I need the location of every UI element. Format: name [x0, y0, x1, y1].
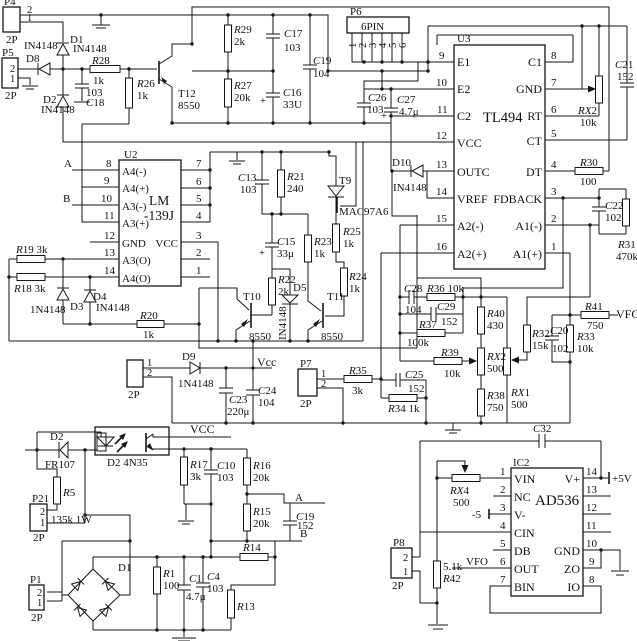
svg-text:10: 10	[436, 77, 448, 89]
svg-text:4: 4	[500, 520, 506, 532]
svg-text:10k: 10k	[580, 117, 597, 129]
svg-text:16: 16	[436, 241, 448, 253]
svg-text:R25: R25	[342, 226, 361, 238]
svg-text:DB: DB	[514, 544, 531, 558]
svg-text:14: 14	[104, 265, 116, 277]
svg-text:220μ: 220μ	[227, 406, 250, 418]
svg-text:8550: 8550	[178, 100, 201, 112]
svg-text:2: 2	[500, 484, 506, 496]
svg-text:R1: R1	[162, 568, 175, 580]
svg-text:500: 500	[487, 363, 504, 375]
svg-text:6: 6	[196, 176, 202, 188]
svg-text:V+: V+	[565, 472, 581, 486]
svg-text:3k: 3k	[190, 471, 202, 483]
svg-text:500: 500	[453, 497, 470, 509]
svg-text:+: +	[260, 96, 266, 107]
svg-text:1N4148: 1N4148	[30, 304, 66, 316]
svg-text:6: 6	[551, 104, 557, 116]
svg-text:E1: E1	[457, 55, 470, 69]
svg-text:10k: 10k	[577, 343, 594, 355]
svg-text:IN4148: IN4148	[73, 43, 107, 55]
svg-text:T11: T11	[327, 291, 344, 303]
svg-text:R26: R26	[136, 78, 155, 90]
svg-text:OUTC: OUTC	[457, 165, 490, 179]
svg-text:11: 11	[104, 210, 115, 222]
svg-text:P21: P21	[32, 493, 49, 505]
svg-text:VCC: VCC	[190, 422, 215, 436]
svg-text:12: 12	[436, 130, 447, 142]
svg-text:R13: R13	[236, 601, 255, 613]
svg-text:C19: C19	[313, 55, 332, 67]
svg-text:1: 1	[37, 598, 42, 609]
svg-text:2P: 2P	[5, 90, 17, 102]
svg-text:C17: C17	[284, 28, 303, 40]
svg-text:3: 3	[551, 186, 557, 198]
svg-text:11: 11	[586, 520, 597, 532]
svg-text:IN4148: IN4148	[96, 302, 130, 314]
svg-text:C24: C24	[258, 385, 277, 397]
svg-text:8: 8	[551, 50, 557, 62]
svg-text:2: 2	[196, 247, 202, 259]
svg-text:103: 103	[240, 184, 257, 196]
svg-text:C20: C20	[550, 325, 569, 337]
svg-text:GND: GND	[554, 544, 580, 558]
svg-text:T12: T12	[178, 88, 196, 100]
svg-text:A1(-): A1(-)	[515, 219, 542, 233]
svg-text:CIN: CIN	[514, 526, 535, 540]
svg-text:C29: C29	[437, 301, 456, 313]
svg-text:T10: T10	[243, 291, 261, 303]
svg-text:152: 152	[617, 71, 634, 83]
svg-text:9: 9	[439, 50, 445, 62]
svg-text:6PIN: 6PIN	[361, 21, 384, 33]
svg-text:12: 12	[104, 230, 115, 242]
svg-text:B: B	[63, 193, 70, 205]
svg-text:3: 3	[500, 502, 506, 514]
svg-text:C26: C26	[368, 92, 387, 104]
svg-text:430: 430	[487, 320, 504, 332]
svg-text:VFO: VFO	[616, 307, 637, 321]
svg-text:C23: C23	[229, 394, 248, 406]
svg-text:1: 1	[551, 241, 557, 253]
svg-text:A4(O): A4(O)	[122, 273, 151, 285]
svg-text:RX2: RX2	[577, 105, 597, 117]
svg-text:100k: 100k	[407, 337, 430, 349]
svg-text:2P: 2P	[31, 612, 43, 624]
svg-text:-5: -5	[472, 509, 482, 521]
svg-text:VCC: VCC	[457, 136, 482, 150]
svg-text:20k: 20k	[253, 472, 270, 484]
svg-text:MAC97A6: MAC97A6	[339, 206, 389, 218]
svg-text:C32: C32	[533, 423, 551, 435]
svg-text:103: 103	[284, 42, 301, 54]
svg-text:7: 7	[196, 158, 202, 170]
svg-text:IN4148: IN4148	[41, 104, 75, 116]
svg-text:D1: D1	[118, 562, 131, 574]
svg-text:R17: R17	[189, 459, 208, 471]
svg-text:152: 152	[441, 316, 458, 328]
svg-text:R23: R23	[313, 236, 332, 248]
svg-text:103: 103	[217, 472, 234, 484]
svg-text:1: 1	[40, 518, 45, 529]
svg-text:E2: E2	[457, 82, 470, 96]
svg-text:13: 13	[436, 159, 448, 171]
svg-text:11: 11	[437, 104, 448, 116]
svg-text:R31: R31	[617, 239, 636, 251]
svg-text:CT: CT	[527, 134, 543, 148]
svg-text:5.1k: 5.1k	[443, 561, 463, 573]
svg-text:5: 5	[196, 193, 202, 205]
svg-text:R35: R35	[348, 365, 367, 377]
svg-text:A4(-): A4(-)	[122, 166, 147, 178]
svg-text:R24: R24	[348, 271, 367, 283]
svg-text:P5: P5	[2, 47, 14, 59]
svg-text:750: 750	[587, 320, 604, 332]
svg-text:R36 10k: R36 10k	[426, 283, 464, 295]
svg-text:R27: R27	[233, 80, 252, 92]
svg-text:7: 7	[500, 574, 506, 586]
svg-text:DT: DT	[526, 165, 543, 179]
svg-text:14: 14	[586, 466, 598, 478]
svg-text:152: 152	[408, 383, 425, 395]
svg-text:A: A	[64, 158, 72, 170]
svg-text:1k: 1k	[349, 283, 361, 295]
svg-text:R33: R33	[576, 331, 595, 343]
svg-text:D5: D5	[293, 282, 307, 294]
svg-text:7: 7	[551, 77, 557, 89]
svg-text:R34 1k: R34 1k	[387, 403, 420, 415]
svg-text:1k: 1k	[314, 248, 326, 260]
svg-text:U2: U2	[124, 149, 137, 161]
svg-text:OUT: OUT	[514, 562, 539, 576]
svg-text:33U: 33U	[283, 99, 302, 111]
svg-text:NC: NC	[514, 490, 531, 504]
svg-text:AD536: AD536	[535, 493, 580, 509]
svg-text:FDBACK: FDBACK	[493, 192, 542, 206]
svg-text:D2 4N35: D2 4N35	[107, 457, 148, 469]
svg-text:3k: 3k	[352, 385, 364, 397]
svg-text:R37: R37	[418, 319, 437, 331]
svg-text:VFO: VFO	[466, 556, 488, 568]
svg-text:C4: C4	[207, 571, 220, 583]
svg-text:R41: R41	[584, 301, 603, 313]
svg-text:104: 104	[258, 397, 275, 409]
svg-text:C10: C10	[217, 460, 236, 472]
svg-text:IO: IO	[567, 580, 580, 594]
svg-text:1k: 1k	[137, 90, 149, 102]
svg-text:R28: R28	[91, 55, 110, 67]
svg-text:+5V: +5V	[612, 473, 632, 485]
svg-text:5: 5	[551, 128, 557, 140]
svg-text:IN4148: IN4148	[24, 40, 58, 52]
svg-text:IN4148: IN4148	[277, 306, 289, 340]
svg-text:33μ: 33μ	[277, 248, 294, 260]
svg-text:P7: P7	[300, 358, 312, 370]
svg-text:8: 8	[589, 574, 595, 586]
svg-text:12: 12	[586, 502, 597, 514]
svg-text:8: 8	[106, 158, 112, 170]
svg-text:U3: U3	[457, 33, 471, 45]
svg-text:P6: P6	[350, 6, 362, 18]
svg-text:750: 750	[487, 402, 504, 414]
svg-text:C1: C1	[528, 55, 542, 69]
svg-text:13: 13	[104, 247, 116, 259]
svg-text:102: 102	[552, 343, 569, 355]
svg-text:R19 3k: R19 3k	[15, 244, 48, 256]
svg-text:15k: 15k	[532, 340, 549, 352]
svg-text:2: 2	[40, 507, 45, 518]
svg-text:GND: GND	[516, 82, 542, 96]
svg-text:20k: 20k	[234, 92, 251, 104]
svg-text:A3(O): A3(O)	[122, 255, 151, 267]
svg-text:RX1: RX1	[510, 387, 530, 399]
svg-text:D10: D10	[392, 157, 411, 169]
svg-text:100: 100	[580, 176, 597, 188]
svg-text:2P: 2P	[128, 389, 140, 401]
svg-text:2P: 2P	[300, 398, 312, 410]
svg-text:1k: 1k	[143, 329, 155, 341]
svg-text:+: +	[259, 248, 265, 259]
svg-text:C27: C27	[397, 94, 416, 106]
svg-text:A1(+): A1(+)	[513, 247, 542, 261]
svg-text:P1: P1	[30, 574, 42, 586]
svg-text:2k: 2k	[234, 36, 246, 48]
svg-text:R29: R29	[233, 24, 252, 36]
svg-text:D8: D8	[26, 53, 40, 65]
svg-text:TL494: TL494	[483, 110, 523, 126]
svg-text:R42: R42	[442, 573, 461, 585]
svg-text:R14: R14	[242, 542, 261, 554]
svg-text:470k: 470k	[616, 251, 637, 263]
svg-text:R20: R20	[139, 310, 158, 322]
svg-text:R39: R39	[440, 347, 459, 359]
svg-text:C15: C15	[277, 236, 296, 248]
svg-text:IN4148: IN4148	[393, 182, 427, 194]
svg-text:2P: 2P	[392, 580, 404, 592]
svg-text:2: 2	[551, 213, 557, 225]
svg-text:5: 5	[500, 538, 506, 550]
svg-text:10: 10	[586, 538, 598, 550]
svg-text:P4: P4	[4, 0, 16, 8]
svg-text:B: B	[300, 528, 307, 540]
svg-text:C2: C2	[457, 109, 471, 123]
svg-text:R40: R40	[486, 308, 505, 320]
svg-text:1k: 1k	[343, 238, 355, 250]
svg-text:R21: R21	[286, 171, 305, 183]
svg-text:1: 1	[10, 74, 15, 85]
svg-text:2: 2	[403, 553, 408, 564]
svg-text:C16: C16	[283, 87, 302, 99]
svg-text:103: 103	[207, 583, 224, 595]
svg-text:14: 14	[436, 186, 448, 198]
svg-text:R30: R30	[579, 157, 598, 169]
svg-text:3: 3	[196, 230, 202, 242]
svg-text:102: 102	[605, 212, 622, 224]
svg-text:9: 9	[589, 556, 595, 568]
svg-text:BIN: BIN	[514, 580, 535, 594]
svg-text:T9: T9	[339, 175, 352, 187]
svg-text:R15: R15	[252, 506, 271, 518]
svg-text:500: 500	[511, 399, 528, 411]
svg-text:4: 4	[551, 159, 557, 171]
svg-text:C21: C21	[615, 59, 633, 71]
svg-text:9: 9	[104, 175, 110, 187]
svg-text:A3(-): A3(-)	[122, 201, 147, 213]
svg-text:A: A	[295, 492, 303, 504]
svg-text:D9: D9	[182, 351, 196, 363]
svg-text:C28: C28	[404, 283, 423, 295]
svg-text:R16: R16	[252, 460, 271, 472]
svg-text:1: 1	[196, 265, 202, 277]
svg-text:A3(+): A3(+)	[122, 218, 149, 230]
svg-text:D2: D2	[50, 431, 63, 443]
svg-text:RT: RT	[527, 109, 542, 123]
svg-text:20k: 20k	[253, 518, 270, 530]
svg-text:R32: R32	[531, 328, 550, 340]
svg-text:RX4: RX4	[449, 485, 469, 497]
svg-text:6: 6	[398, 43, 409, 48]
svg-text:GND: GND	[122, 238, 146, 250]
svg-text:2P: 2P	[33, 532, 45, 544]
svg-text:R5: R5	[62, 487, 76, 499]
svg-text:Vcc: Vcc	[257, 355, 276, 369]
svg-text:A4(+): A4(+)	[122, 183, 149, 195]
svg-text:VIN: VIN	[514, 472, 536, 486]
svg-text:C18: C18	[86, 97, 105, 109]
svg-text:10k: 10k	[444, 368, 461, 380]
svg-text:D3: D3	[70, 301, 84, 313]
svg-text:IC2: IC2	[513, 457, 530, 469]
svg-text:ZO: ZO	[564, 562, 580, 576]
svg-text:1: 1	[403, 567, 408, 578]
svg-text:LM: LM	[149, 193, 169, 208]
svg-text:A2(+): A2(+)	[457, 247, 486, 261]
svg-text:R18 3k: R18 3k	[13, 283, 46, 295]
svg-text:VCC: VCC	[155, 238, 178, 250]
svg-text:4: 4	[196, 210, 202, 222]
svg-text:+: +	[381, 111, 387, 122]
svg-text:1: 1	[500, 466, 506, 478]
svg-text:6: 6	[500, 556, 506, 568]
svg-text:V-: V-	[514, 508, 526, 522]
svg-text:C22: C22	[605, 200, 623, 212]
svg-text:10: 10	[101, 193, 113, 205]
svg-text:C25: C25	[405, 369, 424, 381]
svg-text:1k: 1k	[93, 75, 105, 87]
svg-text:R38: R38	[486, 390, 505, 402]
svg-text:A2(-): A2(-)	[457, 219, 484, 233]
svg-text:2P: 2P	[6, 34, 18, 46]
svg-text:13: 13	[586, 484, 598, 496]
svg-text:C13: C13	[238, 172, 257, 184]
svg-text:15: 15	[436, 213, 448, 225]
svg-text:VREF: VREF	[457, 192, 488, 206]
svg-text:1N4148: 1N4148	[178, 378, 214, 390]
svg-text:P8: P8	[393, 537, 405, 549]
svg-text:RX2: RX2	[486, 351, 506, 363]
svg-text:240: 240	[287, 183, 304, 195]
